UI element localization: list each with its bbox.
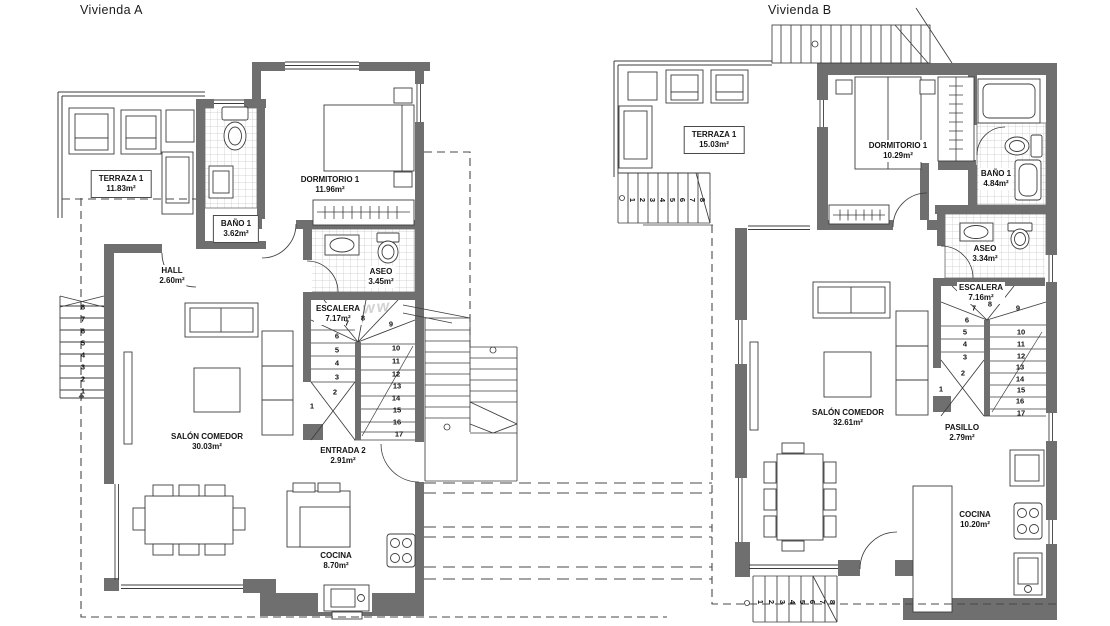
stair-step-number: 5 [81,339,85,347]
stair-step-number: 17 [1017,409,1025,417]
terrace-armchair-b2 [711,70,748,103]
washbasin-a-bano [209,166,233,198]
radiator-b [750,342,758,430]
room-label-terraza-a: TERRAZA 111.83m² [91,170,152,198]
stair-step-number: 12 [1017,352,1025,360]
stair-step-number: 1 [939,385,943,393]
terrace-armchair-a2 [121,110,161,154]
dining-table-b [764,443,836,551]
stair-step-number: 1 [310,402,314,410]
room-label-hall-a: HALL2.60m² [157,265,186,287]
stair-step-number: 8 [698,198,706,202]
nightstand-a2 [394,172,412,187]
room-label-cocina-a: COCINA8.70m² [318,550,354,572]
shelf-a [262,331,293,435]
cooktop-b [1014,503,1042,539]
plan-a-title: Vivienda A [80,3,143,17]
terrace-table-b [628,72,657,100]
stair-step-number: 16 [393,418,401,426]
stair-step-number: 6 [678,198,686,202]
stair-step-number: 12 [392,370,400,378]
stair-step-number: 13 [1016,363,1024,371]
kitchen-cabinet-b [1010,450,1044,486]
shelf-b [896,311,928,415]
stair-step-number: 9 [389,320,393,328]
stair-step-number: 10 [1017,328,1025,336]
sink-b [1014,553,1042,595]
stair-step-number: 9 [1016,304,1020,312]
stair-step-number: 2 [961,369,965,377]
stair-step-number: 5 [798,600,806,604]
stair-step-number: 15 [393,406,401,414]
stair-step-number: 8 [81,303,85,311]
room-label-dormitorio-b: DORMITORIO 110.29m² [867,140,930,162]
stair-step-number: 8 [361,314,365,322]
room-label-entrada-a: ENTRADA 22.91m² [318,445,367,467]
wardrobe-b [829,205,889,224]
dining-table-a [133,485,245,555]
stair-step-number: 4 [658,198,666,202]
stair-step-number: 7 [972,304,976,312]
terrace-sofa-a [162,152,193,214]
stair-step-number: 14 [392,394,400,402]
floor-plan-canvas: Vivienda A Vivienda B www TERRAZA 111.83… [0,0,1110,626]
room-label-terraza-b: TERRAZA 115.03m² [684,126,745,154]
sofa-a [185,303,258,337]
stair-step-number: 3 [778,600,786,604]
stair-step-number: 8 [988,300,992,308]
stair-step-number: 3 [648,198,656,202]
nightstand-b2 [920,80,935,94]
washbasin-b-aseo [960,223,993,241]
toilet-b-bano [1005,135,1042,157]
nightstand-a1 [394,88,412,103]
stair-step-number: 6 [808,600,816,604]
bed-a [324,105,414,171]
wardrobe-a [313,200,414,225]
stair-step-number: 6 [335,332,339,340]
stair-step-number: 2 [767,600,775,604]
stair-step-number: 11 [392,357,400,365]
toilet-a-bano [222,107,248,150]
stair-step-number: 17 [395,430,403,438]
room-label-salon-a: SALÓN COMEDOR30.03m² [169,431,245,453]
stair-step-number: 14 [1016,375,1024,383]
radiator-a [124,352,132,444]
stair-step-number: 7 [345,319,349,327]
stair-step-number: 5 [668,198,676,202]
stair-step-number: 3 [81,363,85,371]
stair-step-number: 16 [1016,397,1024,405]
stair-step-number: 6 [965,316,969,324]
stair-step-number: 8 [828,600,836,604]
stair-step-number: 1 [81,387,85,395]
stair-step-number: 13 [393,382,401,390]
stair-step-number: 6 [81,327,85,335]
terrace-sofa-b [619,106,652,168]
stair-step-number: 4 [963,340,967,348]
sofa-b [813,282,890,318]
vivienda-b-interior-stair [941,286,1046,416]
coffee-table-b [824,352,871,397]
stair-step-number: 15 [1017,386,1025,394]
stair-step-number: 2 [333,388,337,396]
stair-step-number: 1 [628,198,636,202]
connector-dashed-lines [424,483,712,579]
shower-b [978,79,1040,123]
stair-step-number: 3 [335,373,339,381]
coffee-table-a [194,368,240,412]
bathtub-b [1015,160,1041,200]
stair-step-number: 5 [963,328,967,336]
nightstand-b1 [836,80,852,94]
washbasin-a-aseo [325,235,359,255]
room-label-salon-b: SALÓN COMEDOR32.61m² [810,407,886,429]
kitchen-island-a [287,483,350,547]
stair-step-number: 7 [81,315,85,323]
stair-step-number: 4 [335,359,339,367]
room-label-cocina-b: COCINA10.20m² [957,509,993,531]
stair-step-number: 10 [392,344,400,352]
stair-step-number: 1 [756,600,764,604]
room-label-dormitorio-a: DORMITORIO 111.96m² [299,174,362,196]
room-label-bano-a: BAÑO 13.62m² [213,215,259,243]
stair-step-number: 5 [335,346,339,354]
vivienda-a-exterior-stair [60,296,104,399]
room-label-pasillo-b: PASILLO2.79m² [943,422,981,444]
terrace-table-a [166,110,194,142]
plan-b-title: Vivienda B [768,3,832,17]
cooktop-a [387,534,415,567]
room-label-escalera-b: ESCALERA7.16m² [957,282,1005,304]
terrace-armchair-a1 [69,108,114,154]
stair-step-number: 3 [963,353,967,361]
stair-step-number: 7 [688,198,696,202]
stair-step-number: 11 [1017,340,1025,348]
room-label-aseo-b: ASEO3.34m² [970,243,999,265]
stair-step-number: 4 [788,600,796,604]
room-label-escalera-a: ESCALERA7.17m² [314,303,362,325]
stair-step-number: 2 [638,198,646,202]
stair-step-number: 2 [81,375,85,383]
stair-step-number: 7 [818,600,826,604]
floorplan-linework [0,0,1110,626]
room-label-bano-b: BAÑO 14.84m² [979,168,1013,190]
kitchen-peninsula-b [913,486,952,612]
toilet-a-aseo [377,233,399,263]
stair-step-number: 4 [81,351,85,359]
closet-b [938,77,974,161]
terrace-armchair-b1 [666,70,703,103]
room-label-aseo-a: ASEO3.45m² [366,266,395,288]
